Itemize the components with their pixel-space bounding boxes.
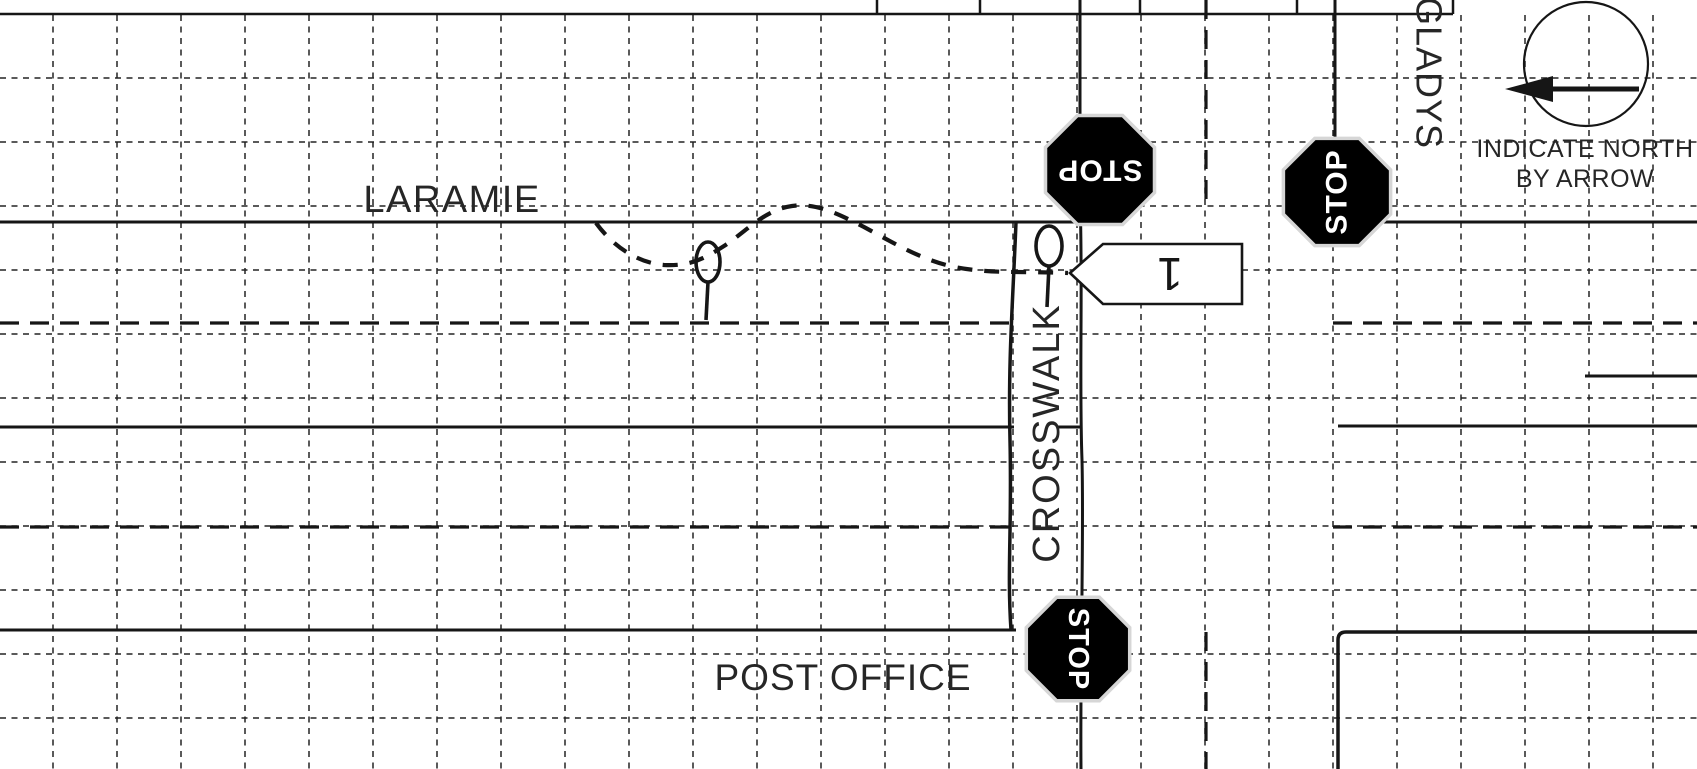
- vehicle-1-number: 1: [1157, 248, 1183, 300]
- pedestrian-symbol-east-stick: [1047, 266, 1049, 307]
- street-label-gladys: GLADYS: [1409, 0, 1450, 149]
- stop-sign-east: STOP: [1283, 138, 1390, 245]
- street-label-laramie: LARAMIE: [363, 179, 540, 221]
- vehicle-1-marker: 1: [1070, 244, 1242, 304]
- north-note-line-2: BY ARROW: [1516, 165, 1654, 193]
- collision-diagram-sheet: LARAMIEPOST OFFICECROSSWALKGLADYSINDICAT…: [0, 0, 1697, 769]
- crosswalk-label: CROSSWALK: [1026, 303, 1068, 562]
- vehicle-1-outline: [1070, 244, 1242, 304]
- stop-sign-east-glyph: STOP: [1321, 149, 1354, 234]
- stop-sign-south-glyph: STOP: [1062, 608, 1094, 690]
- pedestrian-symbol-west-stick: [706, 282, 708, 320]
- stop-sign-south: STOP: [1026, 597, 1129, 700]
- diagram-canvas: LARAMIEPOST OFFICECROSSWALKGLADYSINDICAT…: [0, 0, 1697, 769]
- landmark-label-post-office: POST OFFICE: [714, 657, 971, 698]
- stop-sign-north-glyph: STOP: [1057, 154, 1142, 187]
- north-note-line-1: INDICATE NORTH: [1476, 135, 1693, 163]
- stop-sign-north: STOP: [1046, 116, 1155, 225]
